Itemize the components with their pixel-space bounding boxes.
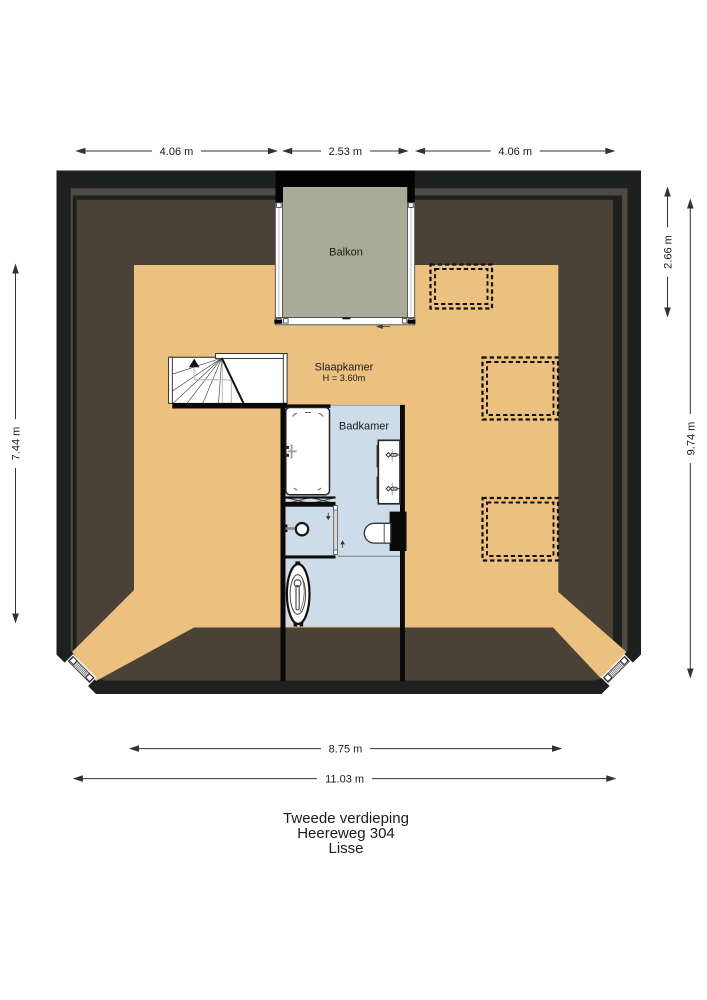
svg-text:Balkon: Balkon bbox=[329, 247, 363, 259]
svg-text:4.06 m: 4.06 m bbox=[160, 146, 194, 158]
svg-text:8.75 m: 8.75 m bbox=[329, 744, 363, 756]
svg-text:9.74 m: 9.74 m bbox=[685, 422, 697, 456]
svg-text:Badkamer: Badkamer bbox=[339, 421, 389, 433]
svg-text:11.03 m: 11.03 m bbox=[325, 774, 364, 786]
svg-text:H = 3.60m: H = 3.60m bbox=[323, 373, 366, 383]
svg-text:4.06 m: 4.06 m bbox=[498, 146, 532, 158]
svg-text:2.53 m: 2.53 m bbox=[328, 146, 362, 158]
svg-text:Lisse: Lisse bbox=[328, 840, 363, 857]
svg-text:7.44 m: 7.44 m bbox=[11, 427, 23, 461]
svg-text:2.66 m: 2.66 m bbox=[663, 235, 675, 269]
svg-text:Slaapkamer: Slaapkamer bbox=[315, 362, 374, 374]
